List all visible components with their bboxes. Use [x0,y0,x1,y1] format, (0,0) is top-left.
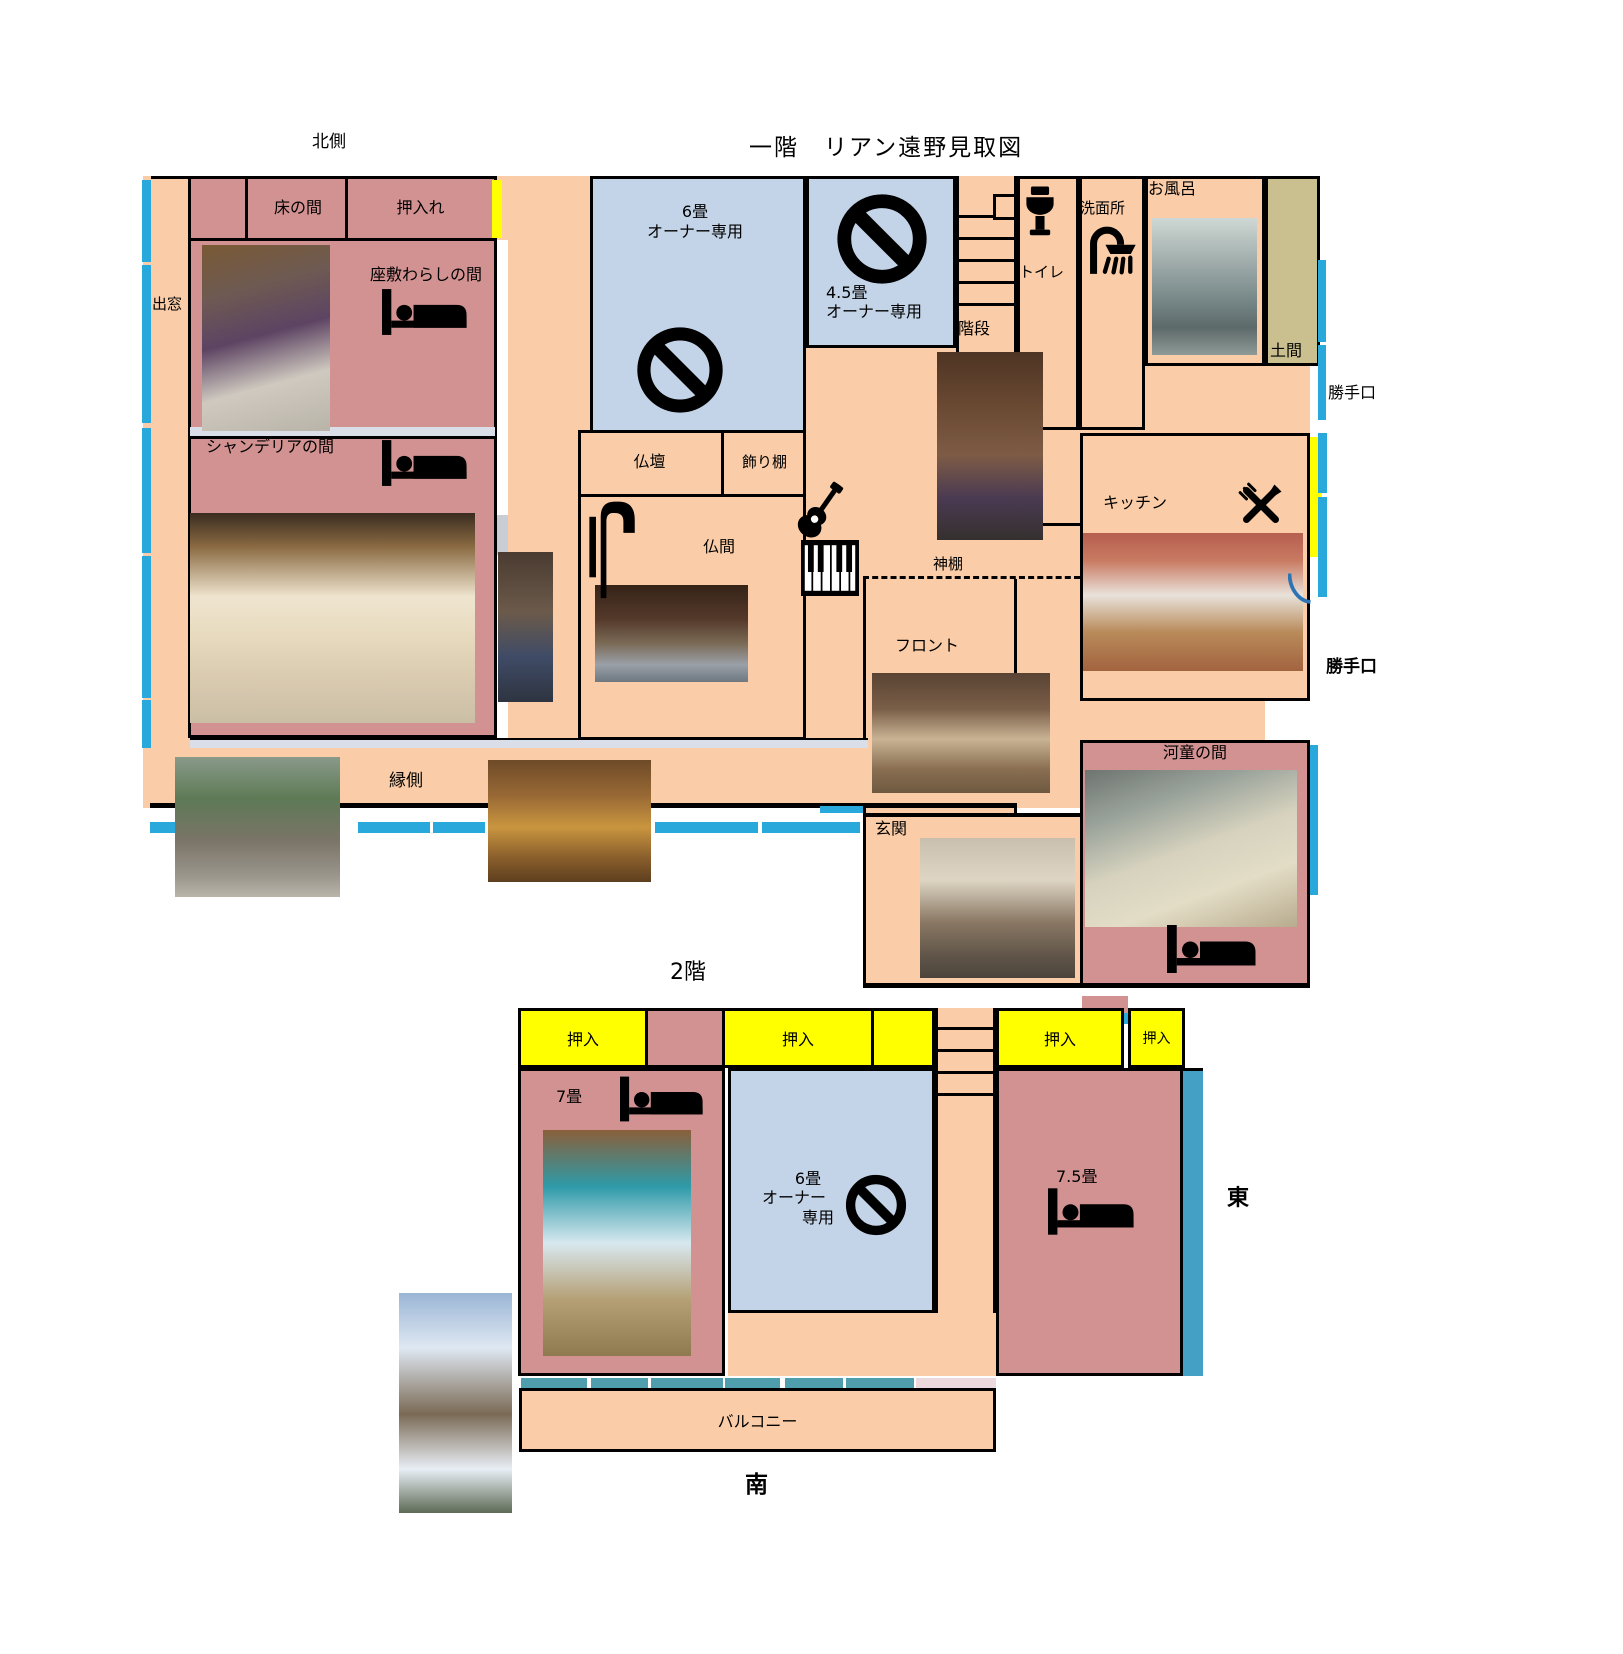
guitar-icon [790,478,852,542]
closet-3-label: 押入 [1044,1026,1076,1050]
wall-closet-row-bottom [188,238,497,241]
window-strip-genkan-top [820,806,863,813]
window-strip-east-f2 [1183,1068,1203,1376]
photo-balcony-winter [399,1293,512,1513]
photo-genkan [920,838,1075,978]
tokonoma-label: 床の間 [248,199,348,217]
owner-6jo-f2-label-line3: 専用 [738,1209,898,1227]
balcony-label: バルコニー [718,1408,798,1432]
window-strip-balcony-2 [591,1378,648,1388]
floor-plan-page: 北側 一階 リアン遠野見取図 出窓 床の間 押入れ 座敷わらしの間 シャンデリア… [0,0,1623,1654]
window-strip-balcony-1 [521,1378,587,1388]
senmenjo-label: 洗面所 [1080,200,1125,217]
closet-1-label: 押入 [567,1026,599,1050]
owner-6jo-label-line2: オーナー専用 [595,223,795,241]
hall-below-owner-room-f2 [728,1313,996,1376]
window-strip-engawa-2 [358,822,430,833]
owner-45jo-label-line2: オーナー専用 [826,303,922,321]
window-strip-balcony-6 [846,1378,914,1388]
photo-zashiki-warashi-room [202,245,330,431]
photo-kitchen [1083,533,1303,671]
doma-strip [1265,176,1320,366]
crossed-utensils-icon [1236,480,1286,530]
owner-6jo-f2-label-line2: オーナー [714,1189,874,1207]
closet-4: 押入 [1128,1008,1185,1068]
closet-small-unlabeled [871,1008,935,1068]
window-strip-kitchen-1 [1318,433,1327,493]
photo-engawa-exterior [175,757,340,897]
east-label: 東 [1227,1186,1249,1211]
no-entry-icon [836,193,928,285]
katteguchi-north-label: 勝手口 [1328,384,1376,402]
toire-label: トイレ [1019,264,1064,281]
owner-6jo-label-line1: 6畳 [595,203,795,221]
no-entry-icon [636,326,724,414]
kamidana-shelf-line [863,553,1080,579]
doma-label: 土間 [1270,342,1302,360]
bed-icon [1167,924,1257,974]
front-label: フロント [895,637,959,655]
window-strip-left-1 [142,180,151,262]
north-side-label: 北側 [312,133,346,153]
room-75jo-label: 7.5畳 [1056,1168,1097,1186]
window-strip-yellow-topleft [492,180,502,238]
photo-7jo-room [543,1130,691,1356]
engawa-label: 縁側 [389,772,423,792]
floor1-base-doma-hall [1265,366,1310,433]
bed-icon [382,288,468,336]
window-strip-engawa-5 [762,822,860,833]
bay-window-corridor [151,176,190,748]
room-7jo-label: 7畳 [556,1088,582,1106]
photo-engawa-corridor [488,760,651,882]
window-strip-left-4 [142,556,151,698]
window-strip-kappa-right [1310,745,1318,895]
closet-2-label: 押入 [782,1026,814,1050]
photo-kimono-children [498,552,553,702]
kaidan-label: 階段 [958,320,990,338]
window-strip-balcony-4 [725,1378,780,1388]
kamidana-label: 神棚 [933,556,963,573]
window-strip-left-2 [142,265,151,423]
chandelier-room-label: シャンデリアの間 [206,438,334,456]
page-title: 一階 リアン遠野見取図 [749,135,1023,161]
katteguchi-east-label: 勝手口 [1326,658,1377,678]
closet-2: 押入 [722,1008,874,1068]
genkan-label: 玄関 [875,820,907,838]
closet-4-label: 押入 [1143,1028,1171,1048]
piano-icon [801,540,859,596]
owner-6jo-f2-label-line1: 6畳 [728,1170,888,1188]
oshiire-label: 押入れ [348,199,493,217]
window-strip-engawa-3 [433,822,485,833]
wall-gap-gray-tick [497,515,508,555]
ofuro-label: お風呂 [1148,180,1196,198]
butsuma-label: 仏間 [703,538,735,556]
balcony: バルコニー [519,1388,996,1452]
hall-strip-above-engawa [190,738,868,748]
kappa-room-label: 河童の間 [1080,744,1310,762]
toilet-icon [1023,186,1057,238]
window-strip-balcony-5 [785,1378,843,1388]
shower-icon [1086,220,1140,276]
window-strip-left-5 [142,700,151,748]
photo-staircase-children [937,352,1043,540]
closet-3: 押入 [996,1008,1124,1068]
window-strip-kitchen-2 [1318,497,1327,597]
owner-45jo-label-line1: 4.5畳 [826,284,867,302]
bed-icon [1048,1188,1135,1235]
window-strip-engawa-4 [655,822,758,833]
zashiki-warashi-label: 座敷わらしの間 [370,266,482,284]
south-label: 南 [745,1472,768,1498]
balcony-edge-strip [916,1378,996,1388]
closet-row-pink-gap [645,1008,725,1068]
photo-front-desk [872,673,1050,793]
bay-window-label: 出窓 [152,296,182,313]
window-strip-left-3 [142,428,151,553]
butsudan-label: 仏壇 [578,453,721,471]
stairwell-f2-steps [938,1008,993,1098]
staircase-landing [993,194,1017,220]
window-strip-balcony-3 [651,1378,723,1388]
photo-bath [1152,218,1257,355]
bed-icon [382,440,468,486]
closet-1: 押入 [518,1008,648,1068]
armchair-icon [588,496,638,600]
bed-icon [620,1076,704,1122]
kazaridana-label: 飾り棚 [723,454,806,471]
floor2-heading: 2階 [670,960,706,985]
door-arc-icon [1288,570,1312,604]
kitchen-label: キッチン [1103,494,1167,512]
window-strip-right-2 [1318,345,1326,420]
window-strip-right-1 [1318,260,1326,342]
photo-kappa-room [1085,770,1297,927]
photo-chandelier-room [190,513,475,723]
